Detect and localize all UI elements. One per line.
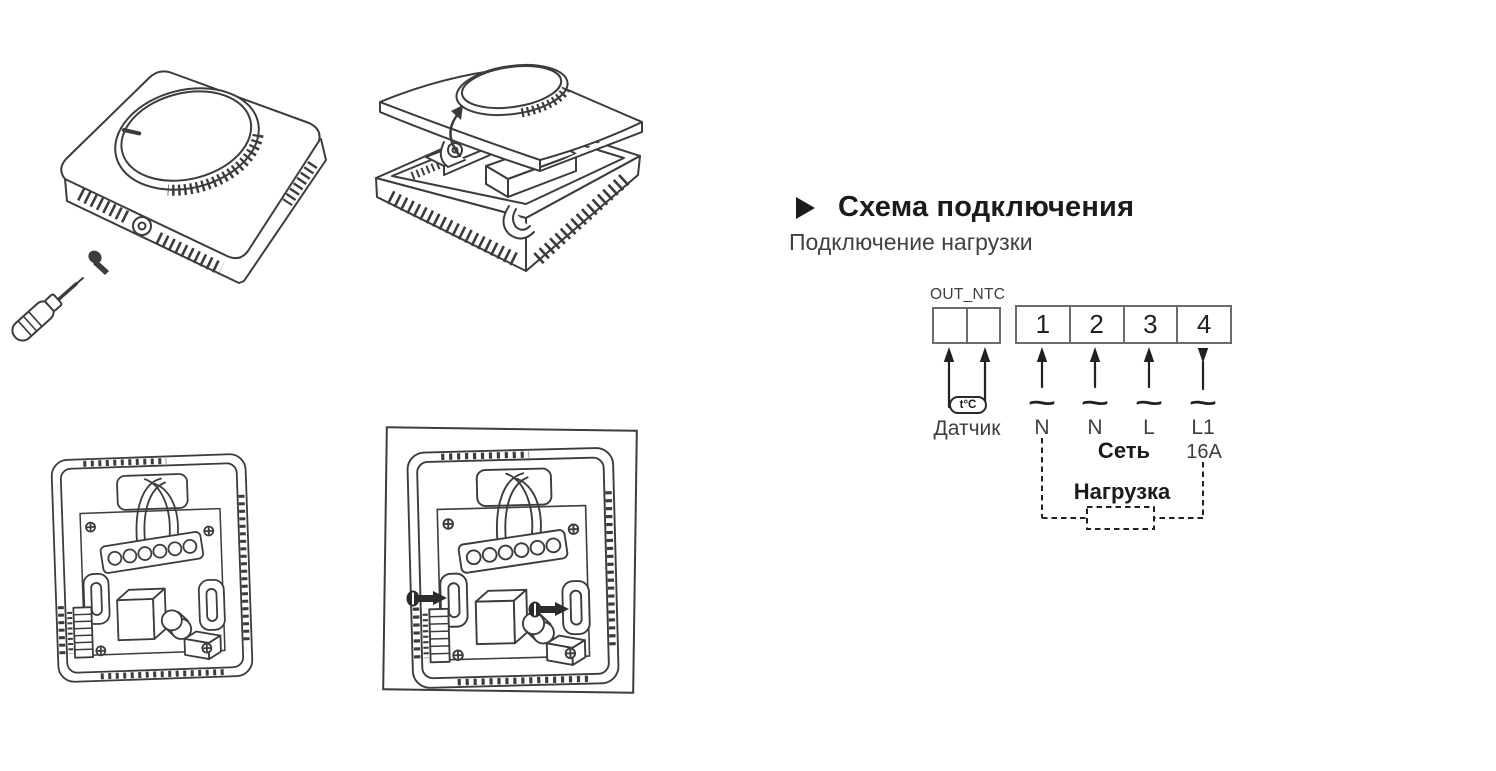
wire-label-n2: N bbox=[1087, 416, 1102, 440]
section-subtitle: Подключение нагрузки bbox=[789, 229, 1033, 256]
screw bbox=[86, 248, 109, 275]
thermostat-body bbox=[61, 71, 326, 283]
terminal-3: 3 bbox=[1123, 307, 1177, 342]
wire-label-n1: N bbox=[1034, 416, 1049, 440]
screwdriver bbox=[8, 278, 83, 344]
rear-device-view bbox=[51, 454, 253, 683]
wire-label-l1: L1 bbox=[1191, 416, 1214, 440]
up-arrow-icons bbox=[944, 347, 1154, 362]
sensor-terminal-cell bbox=[966, 309, 1000, 342]
ac-symbol: ~ bbox=[1189, 390, 1217, 416]
terminal-1: 1 bbox=[1017, 307, 1069, 342]
sensor-symbol-badge: t°C bbox=[949, 396, 987, 414]
thermostat-front-illustration bbox=[8, 45, 340, 360]
thermostat-wall-mount-illustration bbox=[380, 420, 640, 715]
sensor-label: Датчик bbox=[934, 417, 1001, 441]
ac-symbol: ~ bbox=[1135, 390, 1163, 416]
ac-symbol: ~ bbox=[1081, 390, 1109, 416]
load-label: Нагрузка bbox=[1074, 479, 1171, 505]
connector-label: OUT_NTC bbox=[930, 286, 1005, 304]
screw-hole bbox=[133, 217, 151, 235]
sensor-terminal-block bbox=[932, 307, 1001, 344]
thermostat-open-cover-illustration bbox=[368, 48, 683, 303]
section-title: Схема подключения bbox=[838, 191, 1134, 224]
rear-device-view bbox=[407, 448, 619, 689]
ac-symbol: ~ bbox=[1028, 390, 1056, 416]
load-box bbox=[1087, 507, 1154, 529]
power-terminal-block: 1 2 3 4 bbox=[1015, 305, 1232, 344]
wiring-diagram: OUT_NTC 1 2 3 4 ~ ~ ~ ~ N N L L1 t°C Дат… bbox=[920, 285, 1260, 560]
section-bullet-icon bbox=[796, 197, 815, 219]
breaker-rating-label: 16A bbox=[1186, 441, 1222, 464]
terminal-4: 4 bbox=[1176, 307, 1230, 342]
wire-label-l: L bbox=[1143, 416, 1155, 440]
terminal-2: 2 bbox=[1069, 307, 1123, 342]
manual-page: { "section": { "title": "Схема подключен… bbox=[0, 0, 1496, 771]
thermostat-rear-illustration bbox=[48, 448, 258, 690]
terminal-arrows bbox=[1042, 362, 1203, 389]
down-arrow-icon bbox=[1198, 348, 1208, 363]
mains-label: Сеть bbox=[1098, 438, 1150, 464]
sensor-terminal-cell bbox=[934, 309, 966, 342]
